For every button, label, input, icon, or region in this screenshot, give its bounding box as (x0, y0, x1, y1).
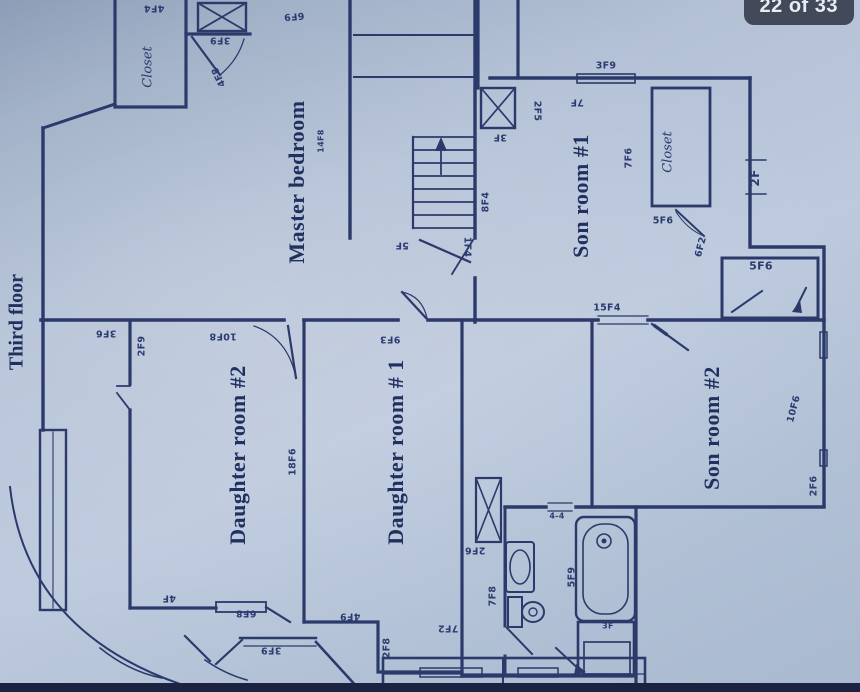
dim-label: 18F6 (288, 448, 299, 476)
room-label: Daughter room #2 (225, 365, 251, 545)
dim-label: 5F6 (653, 216, 674, 227)
dim-label: 2F8 (382, 638, 393, 659)
page-counter-badge: 22 of 33 (744, 0, 854, 25)
dim-label: 7F8 (488, 586, 499, 607)
closet-label: Closet (661, 131, 676, 173)
dim-label: 3F9 (261, 645, 282, 656)
dim-label: 3F9 (596, 61, 617, 72)
dim-label: 8F4 (481, 192, 492, 213)
dim-label: 6F9 (283, 10, 305, 23)
dim-label: 3F (602, 622, 614, 631)
dim-label: 4F4 (144, 3, 165, 14)
room-label: Son room #1 (568, 134, 594, 258)
dim-label: 2F9 (137, 336, 148, 357)
dim-label: 4-4 (549, 512, 564, 521)
dim-label: 6F2 (693, 236, 709, 259)
dim-label: 9F3 (380, 334, 401, 345)
dim-label: 6F8 (236, 608, 257, 619)
room-label: Son room #2 (699, 366, 725, 490)
dim-label: 4F9 (340, 611, 361, 622)
dim-label: 2F6 (809, 476, 820, 497)
dim-label: 3F6 (96, 328, 117, 339)
dim-label: 7F6 (624, 148, 635, 169)
dim-label: 5F9 (567, 567, 578, 588)
dim-label: 15F4 (593, 303, 621, 314)
dim-label: 1F4 (462, 237, 473, 258)
dim-label: 2F6 (465, 545, 486, 556)
dim-label: 5F6 (749, 260, 773, 273)
dim-label: 4F (162, 593, 176, 604)
room-label: Daughter room # 1 (383, 359, 409, 545)
dim-label: 3F (493, 132, 507, 143)
dim-label: 10F8 (209, 331, 237, 342)
dim-label: 7F (570, 97, 584, 108)
dim-label: 7F2 (438, 623, 459, 634)
dim-label: 14F8 (317, 129, 326, 152)
dim-label: 10F6 (785, 394, 803, 423)
photo-edge-strip (0, 683, 860, 692)
dim-label: 2F (748, 169, 762, 186)
dim-label: 2F5 (532, 101, 543, 122)
dim-label: 5F (395, 240, 409, 251)
floor-plan-photo: Third floorMaster bedroomSon room #1Son … (0, 0, 860, 692)
floor-title: Third floor (6, 274, 29, 370)
plan-labels-layer: Third floorMaster bedroomSon room #1Son … (0, 0, 860, 692)
dim-label: 3F9 (210, 35, 231, 46)
dim-label: 4F8 (210, 65, 229, 88)
closet-label: Closet (141, 46, 156, 88)
room-label: Master bedroom (284, 100, 310, 263)
